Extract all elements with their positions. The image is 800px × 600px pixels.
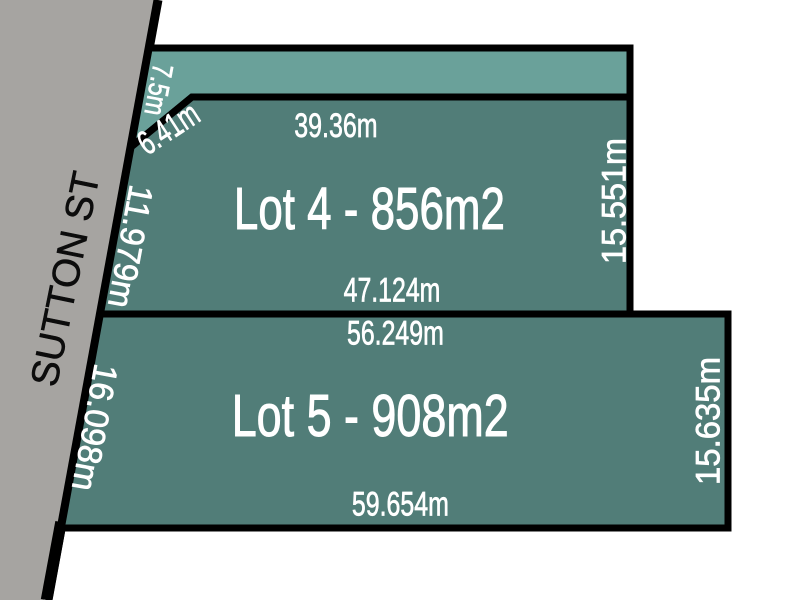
svg-text:Lot 4 - 856m2: Lot 4 - 856m2 xyxy=(234,176,505,242)
svg-text:47.124m: 47.124m xyxy=(344,272,441,310)
svg-text:59.654m: 59.654m xyxy=(352,486,449,524)
svg-text:15.635m: 15.635m xyxy=(690,357,728,485)
svg-text:56.249m: 56.249m xyxy=(347,314,444,352)
svg-text:Lot 5 - 908m2: Lot 5 - 908m2 xyxy=(232,383,509,449)
svg-text:39.36m: 39.36m xyxy=(294,107,377,145)
svg-text:15.551m: 15.551m xyxy=(596,138,634,264)
